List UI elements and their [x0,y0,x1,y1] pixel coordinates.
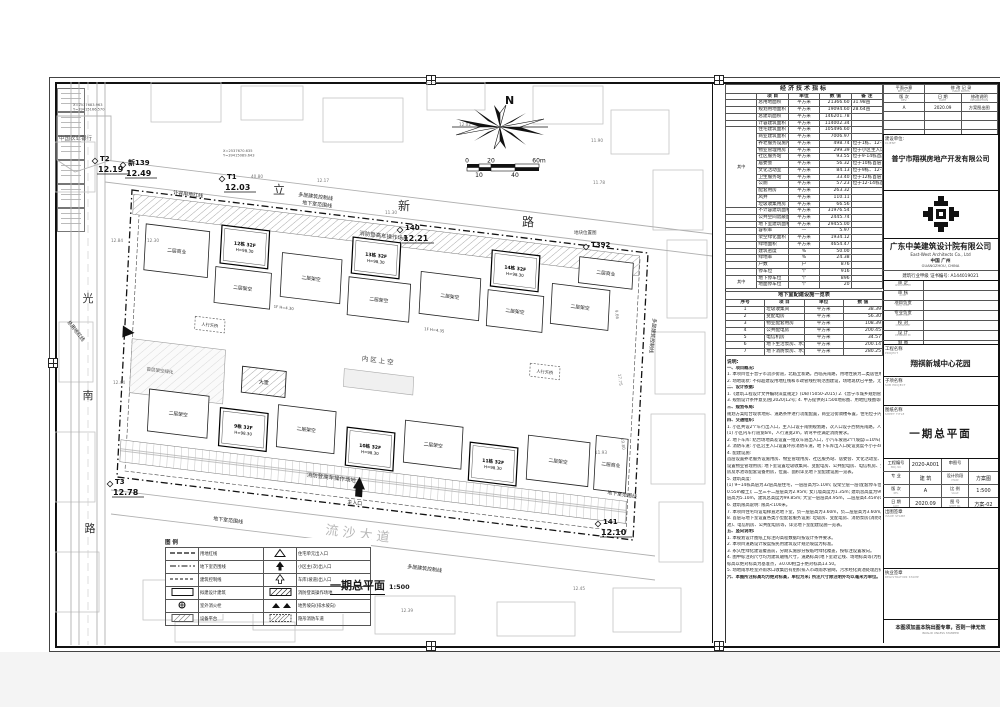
econ-cell [851,275,882,282]
econ-cell: 7006.97 [820,134,851,141]
facility-cell: 1 [726,306,765,313]
validity-notice-cn: 本图须加盖本院出图专章，否则一律无效 [883,624,998,631]
issue-stamp-label-en: ISSUE STAMP [885,515,996,518]
legend-dash2-icon [169,574,196,584]
benchmark-elevation: 12.21 [403,234,429,243]
econ-cell: 33.40 [820,174,851,181]
svg-text:60m: 60m [532,158,546,165]
econ-cell: 20 [820,282,851,289]
svg-text:40: 40 [511,172,519,179]
existing-building [659,502,703,562]
econ-cell [851,262,882,269]
scale-bar: 0 20 60m 10 40 [465,158,546,180]
econ-cell [851,268,882,275]
econ-cell [851,188,882,195]
validity-notice-en: INVALID UNLESS STAMPED [883,631,998,635]
existing-building [651,414,705,484]
econ-cell: 文化活动室 [757,167,788,174]
econ-cell [726,214,757,221]
project-label-en: PROJECT [885,352,996,355]
econ-cell: 84.13 [820,167,851,174]
facility-cell: 数 值 [843,299,882,306]
benchmark-name: T392 [591,241,611,249]
north-arrow-icon [452,105,548,149]
legend-dash-icon [169,548,196,558]
control-line-label: 多层建筑控制线 [407,563,443,574]
econ-cell [851,228,882,235]
signature-row: 专业负责PROF. CHIEF [883,311,998,321]
econ-cell: 停车位 [757,268,788,275]
econ-cell: 4654.47 [820,241,851,248]
legend-label: 拟建设计建筑 [199,587,264,600]
econ-cell [726,228,757,235]
econ-cell: 5.97 [820,228,851,235]
existing-building [241,86,303,120]
econ-cell [726,235,757,242]
econ-cell: 平方米 [788,113,819,120]
spot-elevation: 11.90 [591,138,603,143]
econ-cell [726,268,757,275]
tables-column: 经济技术指标项 目单位数 值备 注总用地面积平方米21366.6031.98亩规… [725,84,884,643]
facility-cell: 38.39 [843,306,882,313]
econ-cell: 平方米 [788,140,819,147]
econ-cell: 位于12-14栋首层 [851,181,882,188]
note-line: 4. 图中标注的尺寸均为建筑轴线尺寸，道路标高(地下室退让线、场地标高等)为控制… [727,555,881,562]
client-name: 普宁市翔祺房地产开发有限公司 [883,154,998,164]
legend-rect-icon [169,587,196,597]
econ-cell: 单位 [788,93,819,100]
info-grid-row: 专 业建 筑设计阶段PHASE方案图 [883,472,998,485]
revision-cell [961,121,998,130]
facility-cell: 平方米 [804,313,843,320]
road-name-char: 路 [522,214,534,229]
legend-label: 地下室范围线 [199,561,264,574]
econ-cell [851,282,882,289]
econ-cell: 498.74 [820,140,851,147]
econ-cell: 建筑密度 [757,248,788,255]
signature-row: 审 核AUDIT [883,291,998,301]
econ-cell: 876 [820,262,851,269]
road-name-char: 光 [83,291,94,305]
spot-elevation: 11.93 [595,450,607,455]
econ-cell: 总建筑面积 [757,113,788,120]
econ-cell: 位于小区主入口首二层 [851,147,882,154]
economic-indicators-table: 经济技术指标项 目单位数 值备 注总用地面积平方米21366.6031.98亩规… [725,84,883,289]
econ-cell: 平方米 [788,127,819,134]
map-reference-label: 地块位置图 [574,229,597,236]
facility-cell: 200.45 [843,327,882,334]
econ-cell: 31.98亩 [851,100,882,107]
econ-cell: 56.32 [820,161,851,168]
existing-building [55,552,99,612]
econ-cell: 风井 [757,194,788,201]
benchmark-name: 141 [603,518,618,526]
svg-text:20: 20 [487,158,495,165]
facility-cell: 公共配电房 [765,327,804,334]
benchmark-elevation: 12.03 [225,183,250,192]
client-label-en: CLIENT [885,142,996,145]
facility-cell: 7 [726,348,765,355]
bank-building-outline [57,116,111,172]
facility-cell: 序号 [726,299,765,306]
title-block-right-column: 平面示意KEY PLAN修 改 记 录ISSUE NOTES版 次REV.日 期… [883,84,998,643]
signature-row: 校 对CHECKED BY [883,321,998,331]
econ-cell: 垃圾收集用房 [757,201,788,208]
revision-section: 平面示意KEY PLAN修 改 记 录ISSUE NOTES版 次REV.日 期… [883,84,998,135]
econ-cell [851,134,882,141]
revision-cell [884,121,925,130]
econ-cell [851,248,882,255]
econ-cell: 位于12栋首层 [851,174,882,181]
firm-logo-icon [923,196,959,232]
econ-cell: 平方米 [788,161,819,168]
firm-name-en: East-West Architects Co., Ltd [883,252,998,257]
legend-label: 室外消火栓 [199,600,264,613]
facility-cell: 变配电房 [765,313,804,320]
econ-cell [851,201,882,208]
econ-cell: 养老服务设施用房 [757,140,788,147]
project-name-section: 工程名称 PROJECT 翔祺新城中心花园 [883,345,998,377]
note-line: 六、本图所注标高均为绝对标高，单位为米; 所注尺寸除注明外均以毫米为单位。 [727,575,881,582]
note-line: 3. 消防车道: 小区沿主入口设置环形消防车道，地下车库出入口处设宽度不小于4m… [727,444,881,451]
spot-elevation: 12.39 [401,608,413,613]
facility-cell: 地下生活泵房、水池 [765,341,804,348]
info-grid-row: 版 次REV.A比 例SCALE1:500 [883,485,998,498]
econ-cell: 31976.54 [820,208,851,215]
subproject-label-en: SUB PROJECT [885,384,996,387]
revision-cell [925,121,962,130]
coordinate-label: Y=39415166.570 [73,108,105,112]
econ-cell: 个 [788,268,819,275]
econ-cell: 社区服务站 [757,154,788,161]
spot-elevation: 11.30 [385,210,397,215]
econ-cell: 公共空间遮蔽面积 [757,214,788,221]
legend-slope-icon [267,600,294,610]
econ-cell [851,194,882,201]
revision-cell [961,112,998,121]
econ-cell: 个 [788,275,819,282]
legend-dashdot-icon [169,561,196,571]
bank-label: 中国农业银行 [59,134,93,142]
benchmark-name: T2 [100,155,110,163]
econ-cell: 商业建筑面积 [757,134,788,141]
legend-label: 小区主(次)出入口 [297,561,371,574]
revision-cell: 修 改 记 录ISSUE NOTES [925,85,998,94]
facility-cell: 3 [726,320,765,327]
existing-building [613,588,681,632]
registration-stamp-label-en: REGISTRATION STAMP [885,576,996,579]
facility-cell: 地下消防泵房、水池 [765,348,804,355]
econ-cell: 93.55 [820,154,851,161]
econ-cell: 平方米 [788,221,819,228]
econ-cell: 备 注 [851,93,882,100]
facility-cell: 平方米 [804,341,843,348]
econ-cell: 21366.60 [820,100,851,107]
legend-oarrow-icon [267,574,294,584]
coordinate-label: X=2537670.635 [223,149,252,153]
facility-cell: 6 [726,341,765,348]
firm-name: 广东中美建筑设计院有限公司 [883,241,998,252]
econ-cell: 地面停车位 [757,282,788,289]
econ-cell: 平方米 [788,100,819,107]
signature-row: 项目负责PROJ. CHIEF [883,301,998,311]
facility-cell: 108.39 [843,320,882,327]
benchmark-name: T3 [115,478,125,486]
econ-cell: 户数 [757,262,788,269]
note-line: 8. 首层与地下室设置各类小型配套服务设施: 垃圾房、变配电房、消防泵房(消防水… [727,516,881,523]
econ-cell: 经济技术指标 [726,85,883,94]
econ-cell: 不计容建筑面积 [757,208,788,215]
benchmark-elevation: 12.49 [126,169,152,178]
road-name-char: 南 [83,389,94,402]
econ-cell: 66.56 [820,201,851,208]
facility-cell: 垃圾收集间 [765,306,804,313]
benchmark-name: 140 [405,224,420,232]
econ-cell: 物业管理用房 [757,147,788,154]
firm-logo-section [883,191,998,239]
plan-scale-text: 1:500 [389,583,410,591]
facility-cell: 280.25 [843,348,882,355]
signature-rows: 审 定APPROVED BY审 核AUDIT项目负责PROJ. CHIEF专业负… [883,281,998,345]
control-line-label: 地下室范围线 [213,515,244,526]
legend-label: 建筑控制线 [199,574,264,587]
econ-cell [851,241,882,248]
econ-cell: 299.39 [820,147,851,154]
benchmark: 新13912.49 [120,158,157,178]
econ-cell [851,208,882,215]
econ-cell: 位于9栋、12-14栋首层 [851,167,882,174]
econ-cell: 户 [788,262,819,269]
econ-cell: 位于1栋、12-14栋首层 [851,140,882,147]
screenshot-root: 中国农业银行 光南路立新路流 沙 大 道消防登高车操作场地消防登高车操作场地首层… [0,0,1000,707]
spot-elevation: 12.45 [573,586,585,591]
revision-table: 平面示意KEY PLAN修 改 记 录ISSUE NOTES版 次REV.日 期… [883,84,998,135]
facility-cell: 平方米 [804,306,843,313]
revision-cell: 方案图出图 [961,103,998,112]
existing-building [427,82,485,110]
sheet-title-section: 图纸名称 SHEET TITLE 一期总平面 [883,406,998,459]
legend-label: 住宅单元出入口 [297,548,371,561]
road-name-char: 路 [85,522,96,535]
econ-cell: 公厕 [757,181,788,188]
signature-row: 设 计DESIGNED BY [883,331,998,341]
revision-cell: 平面示意KEY PLAN [884,85,925,94]
sheet-title-name: 一期总平面 [883,426,998,441]
title-block: 经济技术指标项 目单位数 值备 注总用地面积平方米21366.6031.98亩规… [712,84,998,643]
note-line: 5. 场地雨水经室外雨水口收集后有组织排入市政雨水管网，污水经化粪池处理后排入市… [727,568,881,575]
info-grid: 工程编号PROJ. NO.2020-A001审图号专 业建 筑设计阶段PHASE… [883,459,998,508]
econ-cell: 平方米 [788,120,819,127]
note-line: 首层设置养老服务设施用房、物业管理用房、社区服务站、居委会、文化活动室、卫生服务… [727,457,881,464]
revision-cell: 日 期DATE [925,94,962,103]
econ-cell: 263.32 [820,188,851,195]
econ-cell: 50.00 [820,248,851,255]
legend-hatch3-icon [267,613,294,623]
notes-title: 说明: [727,359,881,366]
econ-cell: 平方米 [788,154,819,161]
econ-cell: 容积率 [757,228,788,235]
spot-elevation: 40.80 [251,174,263,179]
facility-cell: 平方米 [804,334,843,341]
legend-label: 隐形消防车道 [297,613,371,626]
econ-cell: 19094.60 [820,107,851,114]
econ-cell: 57.23 [820,181,851,188]
facility-cell: 电信机房 [765,334,804,341]
control-line-label: 多层建筑控制线 [647,318,658,354]
spot-elevation: 12.30 [147,238,159,243]
control-line-label: 总用地红线 [65,319,86,343]
facility-cell: 地下室配建设施一览表 [726,292,883,300]
lobby-label: 大堂 [259,378,269,386]
revision-cell: 修改说明DESCRIPTION [961,94,998,103]
facility-cell: 平方米 [804,320,843,327]
revision-cell [925,112,962,121]
sheet-title-label-en: SHEET TITLE [885,413,996,416]
svg-text:0: 0 [465,158,469,165]
econ-cell: 配套用房 [757,188,788,195]
legend-hydrant-icon [169,600,196,610]
econ-cell: 2445.74 [820,214,851,221]
econ-cell: 平方米 [788,201,819,208]
benchmark-elevation: 12.10 [601,528,627,537]
econ-cell: 绿地面积 [757,241,788,248]
econ-cell: 平方米 [788,188,819,195]
econ-cell [726,93,757,100]
subproject-section: 子项名称 SUB PROJECT [883,377,998,406]
benchmark-name: T1 [227,173,237,181]
econ-cell [851,255,882,262]
facility-cell: 物业配套用房 [765,320,804,327]
facility-cell: 56.30 [843,313,882,320]
econ-cell: % [788,255,819,262]
note-line: 1. 本项目位于普宁市流沙街道，北临立新路，西临光南路，用地性质为二类居住用地。 [727,372,881,379]
revision-cell [884,112,925,121]
econ-cell: 896 [820,275,851,282]
econ-cell [726,107,757,114]
econ-cell: 28.64亩 [851,107,882,114]
existing-building [667,240,707,318]
validity-notice: 本图须加盖本院出图专章，否则一律无效 INVALID UNLESS STAMPE… [883,620,998,643]
econ-cell [726,100,757,107]
econ-cell: 105496.60 [820,127,851,134]
econ-cell [726,255,757,262]
existing-building [653,170,703,230]
benchmark-elevation: 12.19 [98,165,124,174]
road-name-char: 新 [398,198,410,213]
legend-hatch2-icon [267,587,294,597]
econ-cell: 绿地率 [757,255,788,262]
econ-cell [726,113,757,120]
facility-cell: 200.14 [843,341,882,348]
legend-arrow-icon [267,561,294,571]
econ-cell: 位于9-14栋首层 [851,154,882,161]
econ-cell: 146201.78 [820,113,851,120]
econ-cell: 平方米 [788,194,819,201]
econ-cell: 总用地面积 [757,100,788,107]
existing-building [655,332,705,394]
econ-cell [726,221,757,228]
facility-cell: 平方米 [804,348,843,355]
econ-cell [851,127,882,134]
econ-cell [726,262,757,269]
econ-cell: 项 目 [757,93,788,100]
spot-elevation: 11.78 [593,180,605,185]
econ-cell: 住宅建筑面积 [757,127,788,134]
coordinate-label: Y=39415089.643 [223,154,255,158]
econ-cell: 1934.12 [820,235,851,242]
info-grid-row: 日 期DATE2020.09图 号SHEET NO.方案-02 [883,498,998,508]
econ-cell [851,235,882,242]
econ-cell: 居委会 [757,161,788,168]
legend-title: 图 例 [165,538,371,546]
legend-label: 地势坡向(排水坡向) [297,600,371,613]
legend-label: 用地红线 [199,548,264,561]
note-line: (1) 9~14栋高层为32层高层住宅，一层层高为5.10m; 设架空层一层(配… [727,483,881,490]
facility-cell: 5 [726,334,765,341]
legend-label: 设备平台 [199,613,264,626]
existing-building [533,86,603,124]
viewport-gutter [0,652,1000,707]
existing-building [323,98,403,142]
econ-cell: 平方米 [788,147,819,154]
econ-cell: 110.11 [820,194,851,201]
signature-row: 审 定APPROVED BY [883,281,998,291]
econ-cell: 卫生服务站 [757,174,788,181]
benchmark: T312.78 [107,478,144,497]
econ-cell: — [788,228,819,235]
benchmark-name: 新139 [128,158,150,167]
econ-cell: 平方米 [788,241,819,248]
econ-cell: 计容建筑面积 [757,120,788,127]
econ-cell [851,113,882,120]
existing-building [611,110,669,154]
existing-building [375,596,455,634]
road-name-char: 立 [273,182,285,197]
facility-cell: 2 [726,313,765,320]
spot-elevation: 12.44 [113,380,125,385]
basement-facility-table: 地下室配建设施一览表序号项 目单位数 值1垃圾收集间平方米38.392变配电房平… [725,291,883,356]
econ-cell [726,241,757,248]
facility-cell: 单位 [804,299,843,306]
firm-city-en: GUANGZHOU, CHINA [883,264,998,268]
site-plan-svg: 中国农业银行 光南路立新路流 沙 大 道消防登高车操作场地消防登高车操作场地首层… [55,82,712,645]
project-name: 翔祺新城中心花园 [883,358,998,369]
econ-cell: 114002.34 [820,120,851,127]
econ-cell [851,221,882,228]
revision-cell: A [884,103,925,112]
econ-cell: % [788,248,819,255]
revision-cell: 2020.09 [925,103,962,112]
econ-cell: 平方米 [788,214,819,221]
benchmark: T392 [583,241,610,250]
econ-cell: 916 [820,268,851,275]
econ-cell: 平方米 [788,167,819,174]
benchmark-elevation: 12.78 [113,488,139,497]
north-label: N [505,94,514,107]
facility-cell: 平方米 [804,327,843,334]
plan-title-text: 一期总平面 [330,577,385,595]
econ-cell: 其中 [726,127,757,208]
econ-cell: 其中 [726,275,757,288]
econ-cell: 个 [788,282,819,289]
econ-cell: 29455.00 [820,221,851,228]
econ-cell [726,248,757,255]
spot-elevation: 12.84 [111,238,123,243]
econ-cell: 位于10栋首层 [851,161,882,168]
econ-cell: 架空绿化面积 [757,235,788,242]
econ-cell [851,214,882,221]
econ-cell: 24.38 [820,255,851,262]
